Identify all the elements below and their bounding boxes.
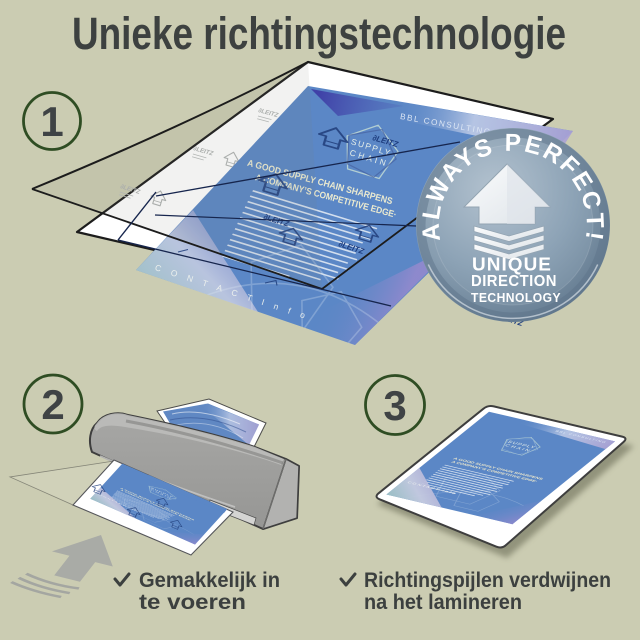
svg-text:na het lamineren: na het lamineren (364, 591, 522, 614)
svg-text:TECHNOLOGY: TECHNOLOGY (471, 290, 561, 305)
svg-text:1: 1 (40, 98, 63, 145)
svg-text:te voeren: te voeren (139, 591, 246, 614)
svg-text:2: 2 (41, 381, 64, 428)
svg-text:Richtingspijlen verdwijnen: Richtingspijlen verdwijnen (364, 569, 611, 592)
svg-text:DIRECTION: DIRECTION (471, 273, 557, 290)
svg-text:Unieke richtingstechnologie: Unieke richtingstechnologie (72, 8, 566, 59)
svg-text:3: 3 (383, 382, 406, 429)
svg-text:Gemakkelijk in: Gemakkelijk in (139, 569, 280, 592)
svg-text:UNIQUE: UNIQUE (472, 255, 552, 275)
